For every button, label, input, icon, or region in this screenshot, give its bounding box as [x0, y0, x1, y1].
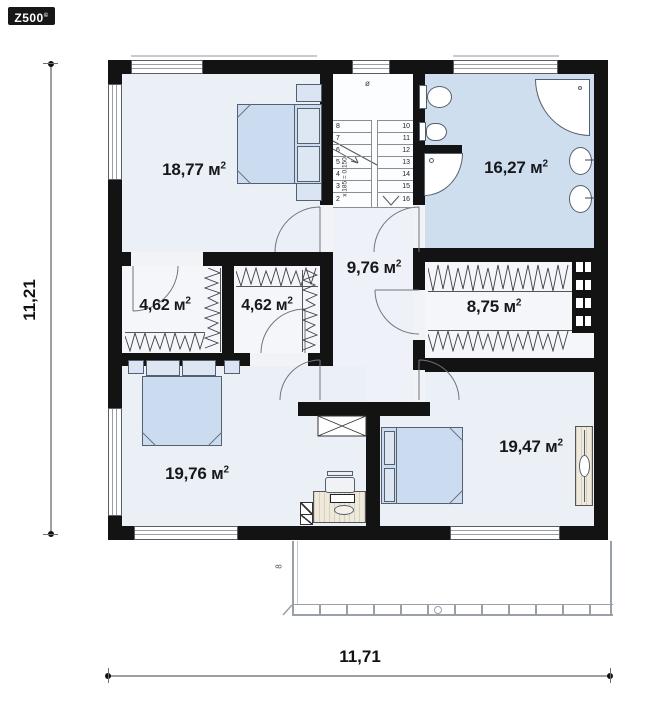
sink-taps: [585, 160, 595, 198]
stair-tread-line: [377, 120, 413, 121]
room-label-bedroom-bottom-left: 19,76 м2: [165, 464, 229, 484]
hanging-rail-symbol: [302, 270, 318, 352]
stair-tread-line: [333, 168, 371, 169]
stair-tread-line: [377, 156, 413, 157]
dimension-tick: [610, 668, 611, 683]
stair-tread-line: [371, 120, 372, 207]
hanging-rail-symbol: [428, 264, 572, 292]
stair-tread-line: [333, 156, 371, 157]
stair-tread-line: [333, 144, 371, 145]
plan-linework: [0, 0, 655, 727]
room-label-bathroom: 16,27 м2: [484, 158, 548, 178]
stair-tread-line: [377, 144, 413, 145]
stair-tread-line: [377, 120, 378, 207]
room-label-wardrobe-right: 8,75 м2: [467, 297, 522, 317]
dimension-label-horizontal: 11,71: [339, 647, 381, 667]
stair-direction-line: [333, 141, 399, 205]
stair-tread-line: [377, 168, 413, 169]
room-label-bedroom-top-left: 18,77 м2: [162, 160, 226, 180]
balcony-corner-line: [283, 605, 292, 615]
dimension-endpoint: [48, 61, 54, 67]
stair-tread-line: [333, 120, 371, 121]
dimension-label-vertical: 11,21: [20, 279, 40, 321]
stair-tread-line: [333, 180, 371, 181]
balcony-post-detail: [435, 607, 442, 614]
stair-tread-line: [377, 132, 413, 133]
floor-plan: Z500© ø 8 7: [0, 0, 655, 727]
room-label-bedroom-bottom-right: 19,47 м2: [499, 437, 563, 457]
hanging-rail-symbol: [125, 332, 205, 352]
dimension-line-vertical: [50, 64, 52, 536]
dimension-line-horizontal: [108, 675, 612, 677]
dimension-tick: [43, 534, 58, 535]
shaft-symbol: [318, 416, 366, 436]
stair-tread-line: [377, 180, 413, 181]
stair-tread-line: [333, 207, 413, 208]
hanging-rail-symbol: [204, 268, 221, 352]
stair-tread-line: [377, 192, 413, 193]
stair-tread-line: [333, 132, 371, 133]
room-label-hall: 9,76 м2: [347, 258, 402, 278]
stair-tread-line: [333, 192, 371, 193]
dimension-tick: [108, 668, 109, 683]
hanging-rail-symbol: [428, 330, 572, 352]
room-label-wardrobe-middle: 4,62 м2: [241, 297, 293, 315]
room-label-wardrobe-left: 4,62 м2: [139, 297, 191, 315]
dimension-tick: [43, 63, 58, 64]
